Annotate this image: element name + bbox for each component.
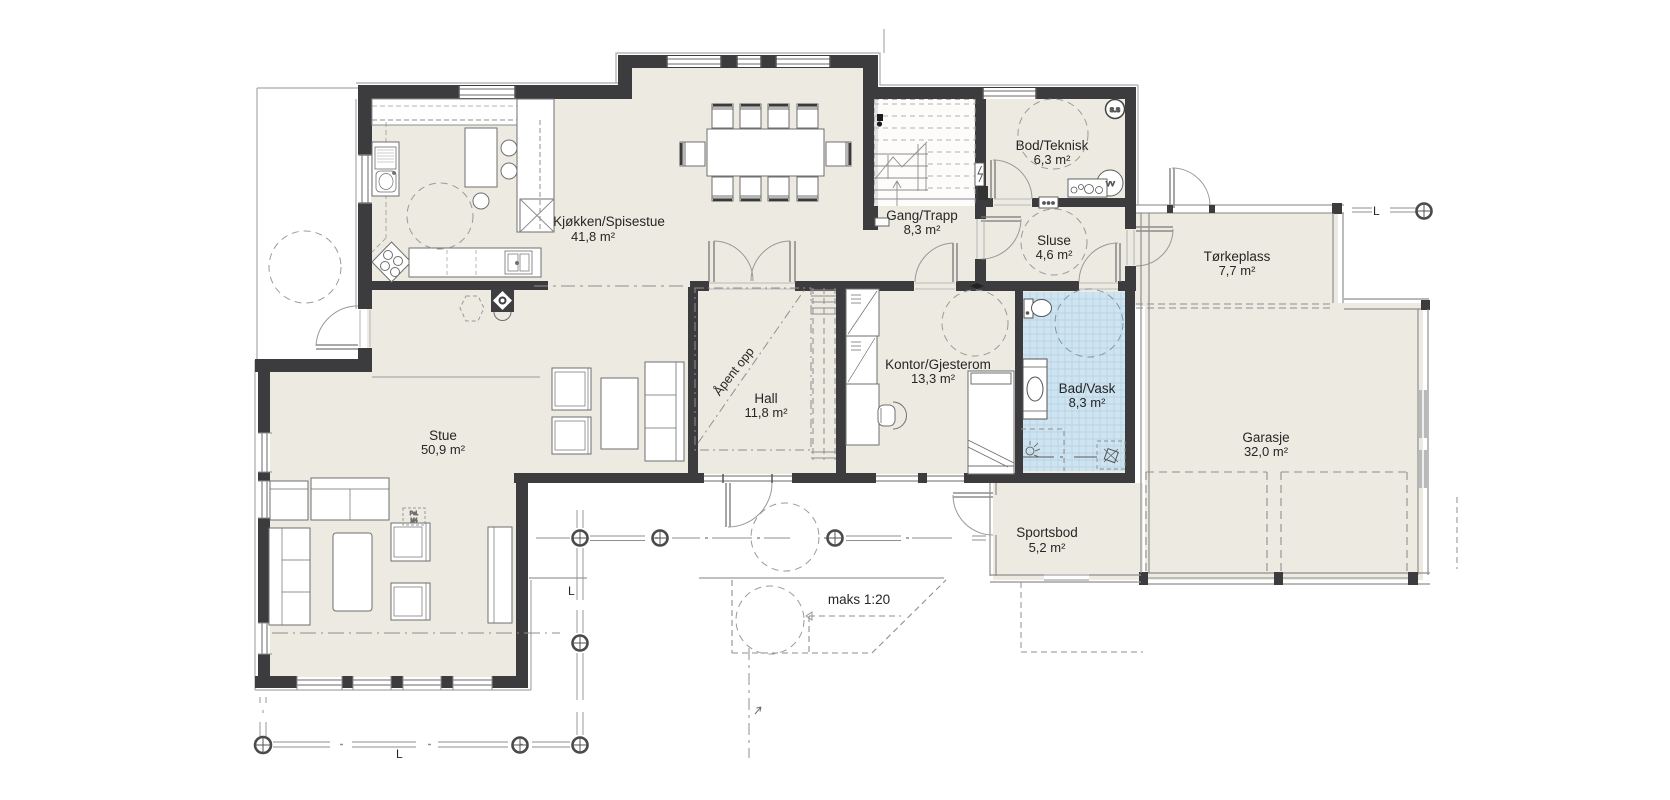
svg-text:8,3 m²: 8,3 m² xyxy=(904,222,942,237)
svg-text:Stue: Stue xyxy=(429,428,457,443)
svg-text:32,0 m²: 32,0 m² xyxy=(1244,444,1289,459)
svg-text:Bad/Vask: Bad/Vask xyxy=(1059,381,1116,396)
svg-text:6,3 m²: 6,3 m² xyxy=(1034,152,1072,167)
svg-text:Gang/Trapp: Gang/Trapp xyxy=(886,208,958,223)
svg-text:11,8 m²: 11,8 m² xyxy=(744,405,788,420)
svg-text:L: L xyxy=(568,584,575,598)
svg-text:Sportsbod: Sportsbod xyxy=(1016,525,1078,540)
svg-text:5,2 m²: 5,2 m² xyxy=(1029,540,1067,555)
svg-text:S.S: S.S xyxy=(1110,107,1121,114)
svg-text:M4: M4 xyxy=(411,518,418,524)
svg-text:Bod/Teknisk: Bod/Teknisk xyxy=(1016,138,1089,153)
svg-text:13,3 m²: 13,3 m² xyxy=(911,371,956,386)
svg-text:Kjøkken/Spisestue: Kjøkken/Spisestue xyxy=(553,214,665,229)
svg-text:L: L xyxy=(396,747,403,761)
svg-text:50,9 m²: 50,9 m² xyxy=(421,442,466,457)
svg-text:Garasje: Garasje xyxy=(1242,430,1289,445)
svg-text:Pei.: Pei. xyxy=(410,511,419,517)
svg-text:L: L xyxy=(1373,204,1380,218)
svg-text:maks 1:20: maks 1:20 xyxy=(828,592,890,607)
svg-text:7,7 m²: 7,7 m² xyxy=(1219,263,1257,278)
svg-text:8,3 m²: 8,3 m² xyxy=(1069,395,1107,410)
svg-text:VV: VV xyxy=(1106,181,1115,188)
svg-text:Hall: Hall xyxy=(754,391,777,406)
svg-text:Sluse: Sluse xyxy=(1037,233,1071,248)
svg-text:41,8 m²: 41,8 m² xyxy=(571,229,616,244)
svg-text:Tørkeplass: Tørkeplass xyxy=(1204,249,1271,264)
svg-text:4,6 m²: 4,6 m² xyxy=(1036,247,1074,262)
svg-text:Kontor/Gjesterom: Kontor/Gjesterom xyxy=(885,357,991,372)
